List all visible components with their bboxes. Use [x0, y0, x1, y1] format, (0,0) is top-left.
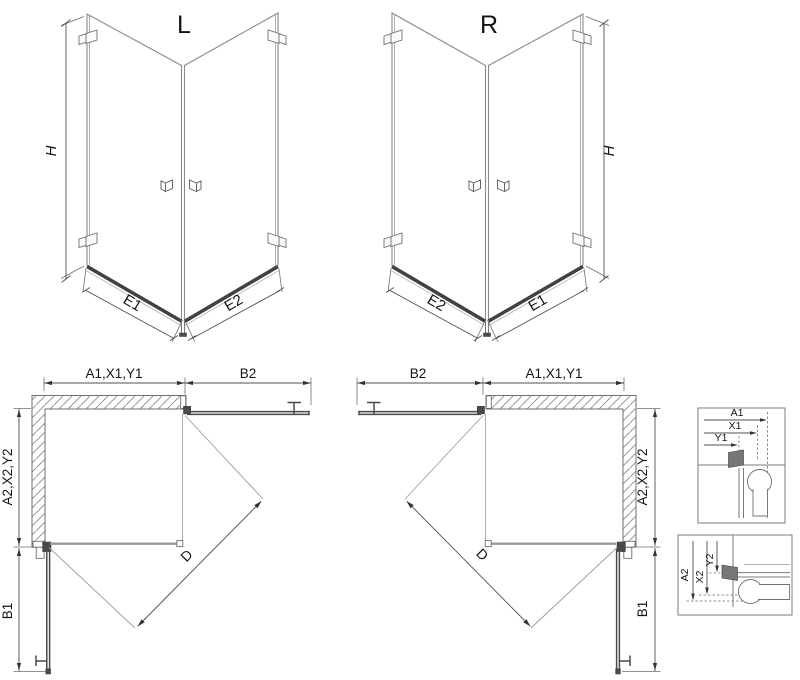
detail-dim-a1: A1	[731, 407, 744, 419]
detail-dim-a2: A2	[679, 568, 691, 581]
height-dim-label: H	[43, 145, 60, 156]
detail-dim-y2: Y2	[704, 553, 716, 566]
height-dim-label: H	[601, 145, 618, 156]
iso-view-right: R H E2 E1	[384, 11, 618, 342]
wall-side-dims-label: A2,X2,Y2	[0, 448, 15, 505]
walls-hatched	[32, 396, 186, 548]
shower-enclosure-technical-drawing: L H E1 E2 R H E2 E1	[0, 0, 800, 680]
detail-dim-x1: X1	[729, 420, 742, 432]
door2-open	[36, 549, 50, 670]
entry-dim-label: D	[473, 545, 491, 563]
iso-view-left: L H E1 E2	[43, 11, 286, 342]
door-side-dim-label: B1	[635, 601, 650, 618]
e-dimension-lines	[386, 288, 588, 341]
door2-end-cap	[46, 669, 51, 674]
h-dimension-line	[62, 20, 71, 283]
detail-box-bottom: A2 X2 Y2	[678, 535, 792, 615]
hinge-clamp-section	[729, 450, 744, 468]
corner-post-bottom	[486, 320, 489, 334]
corner-foot	[484, 333, 491, 337]
variant-label-right: R	[480, 11, 498, 39]
door2-open	[616, 549, 630, 670]
plan-view-right: B2 A1,X1,Y1 A2,X2,Y2 B1 D	[357, 366, 661, 674]
detail-dim-x2: X2	[694, 570, 706, 583]
wall-dims-label: A1,X1,Y1	[85, 366, 142, 381]
door-top-dim-label: B2	[240, 366, 257, 381]
door-swing-lines	[49, 416, 263, 629]
walls-hatched	[486, 396, 636, 548]
profile-stem	[753, 489, 768, 516]
plan-view-left: A1,X1,Y1 B2 A2,X2,Y2 B1 D	[0, 366, 311, 674]
profile-stem	[758, 585, 790, 600]
corner-post-bottom	[182, 320, 185, 334]
door2-end-cap	[616, 669, 621, 674]
entry-dim-label: D	[177, 546, 195, 564]
hinge-block-top	[184, 406, 191, 414]
drawing-canvas: L H E1 E2 R H E2 E1	[0, 0, 800, 680]
corner-connector	[177, 541, 183, 547]
hinge-clamp-section	[722, 565, 738, 581]
variant-label-left: L	[177, 11, 191, 39]
wall-dims-label: A1,X1,Y1	[525, 366, 582, 381]
hinge-block-side	[617, 542, 625, 552]
door-side-dim-label: B1	[0, 603, 15, 620]
wall-profile-top	[486, 396, 491, 409]
door-top-dim-label: B2	[410, 366, 427, 381]
corner-foot	[180, 333, 187, 337]
door1-open	[187, 403, 309, 416]
e-dimension-lines	[82, 288, 284, 341]
detail-dim-y1: Y1	[715, 432, 728, 444]
door-swing-lines	[405, 416, 617, 629]
entry-dimension-line	[407, 502, 530, 627]
door1-open	[359, 403, 481, 416]
detail-box-top: A1 X1 Y1	[698, 407, 785, 523]
hinge-block-top	[477, 406, 484, 414]
wall-side-dims-label: A2,X2,Y2	[635, 448, 650, 505]
entry-dimension-line	[138, 502, 261, 627]
